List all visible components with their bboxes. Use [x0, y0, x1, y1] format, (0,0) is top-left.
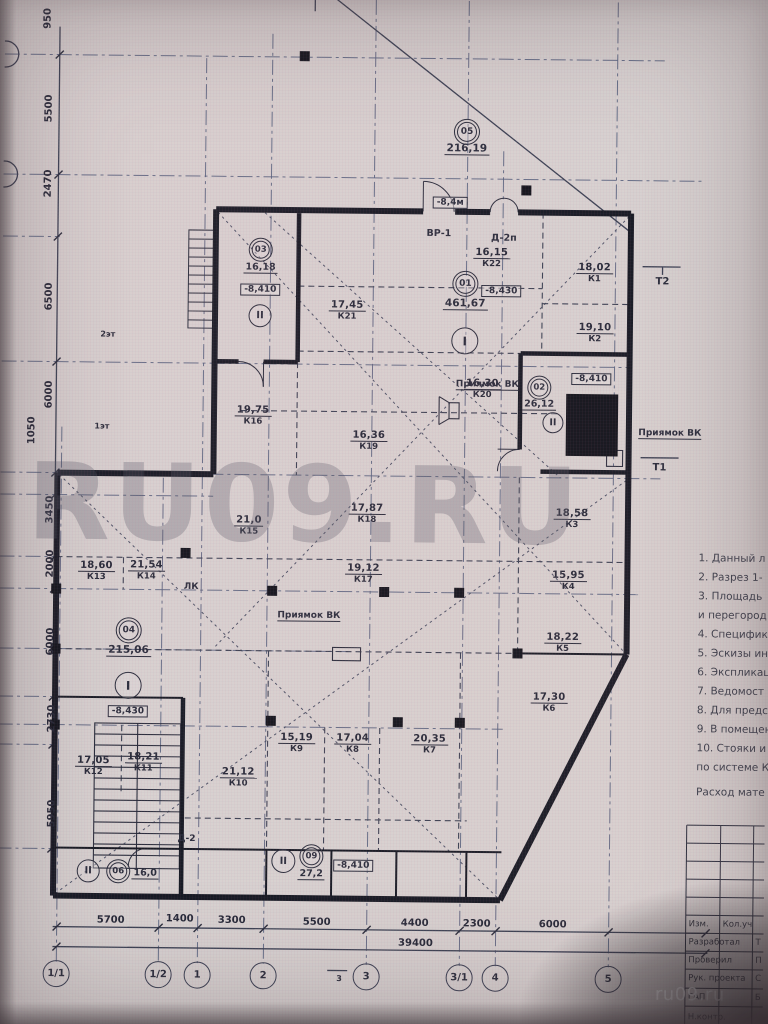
dimension-label: 2470 — [43, 169, 54, 197]
titleblock-cell: Б — [755, 993, 761, 1003]
door-label: Д-2 — [178, 834, 196, 844]
zone-area-value: 16,18 — [243, 262, 277, 274]
zone-area-value: 16,0 — [131, 867, 159, 879]
zone-area-value: 26,12 — [522, 398, 556, 410]
section-mark: Т2 — [655, 276, 669, 287]
watermark-text: RU09.RU — [26, 440, 762, 571]
axis-bubble: 3/1 — [445, 964, 472, 991]
room-label: 15,19К9 — [278, 732, 315, 754]
room-label: 16,15К22 — [473, 247, 510, 269]
dimension-label: 4400 — [401, 918, 429, 929]
zone-stamp-circle: 04 — [119, 620, 139, 640]
axis-bubble: 3 — [352, 963, 379, 990]
dimension-label: 2300 — [463, 918, 491, 929]
level-mark: -8,4м — [433, 196, 468, 208]
room-label: 17,04К8 — [334, 732, 371, 754]
drawing-sheet: 16,15К22 17,45К21 16,30К20 16,36К19 19,7… — [0, 0, 768, 1024]
dimension-label: 5950 — [46, 800, 57, 828]
dimension-label: 2730 — [46, 705, 57, 733]
zone-area-value: 216,19 — [444, 142, 489, 155]
note-line: 8. Для предс — [697, 701, 767, 721]
screen-photo: 16,15К22 17,45К21 16,30К20 16,36К19 19,7… — [0, 0, 768, 1024]
level-mark: -8,430 — [481, 285, 521, 297]
note-line: 3. Площадь — [698, 587, 768, 607]
titleblock-cell: Рук. проекта — [688, 973, 745, 984]
pit-label: Приямок ВК — [277, 610, 340, 622]
titleblock-cell: С — [755, 974, 761, 984]
dimension-label: 6000 — [45, 628, 56, 656]
room-label: 18,22К5 — [544, 632, 581, 654]
room-label: 17,05К12 — [75, 755, 112, 777]
note-line: 6. Экспликац — [697, 663, 767, 683]
axis-bubble: 1/2 — [145, 961, 172, 988]
titleblock-cell: Проверил — [688, 955, 732, 965]
section-mark: 3 — [336, 974, 342, 983]
dimension-label: 6500 — [44, 283, 55, 311]
dimension-label: 3300 — [218, 915, 246, 926]
axis-bubble: 4 — [481, 965, 508, 992]
note-line: 2. Разрез 1- — [698, 568, 768, 588]
dimension-label: 950 — [43, 8, 54, 29]
note-line: 4. Специфик — [698, 625, 768, 645]
zone-area-value: 215,06 — [106, 644, 151, 657]
room-label: 15,95К4 — [550, 570, 587, 592]
titleblock-cell: Изм. — [689, 919, 709, 929]
zone-stamp-circle: 01 — [455, 274, 475, 294]
room-label: 21,12К10 — [220, 766, 257, 788]
level-mark: -8,430 — [108, 705, 148, 717]
zone-roman-circle: I — [115, 672, 142, 699]
axis-bubble: 5 — [594, 966, 621, 993]
dimension-label: 1400 — [166, 913, 194, 924]
zone-roman-circle: I — [451, 327, 478, 354]
zone-roman-circle: II — [271, 849, 295, 873]
zone-roman-circle: II — [77, 859, 100, 882]
titleblock-cell: Кол.уч — [723, 920, 753, 930]
note-line: 7. Ведомост — [697, 682, 767, 702]
zone-stamp-circle: 06 — [109, 862, 127, 880]
zone-stamp-circle: 05 — [457, 122, 477, 142]
floor-mark: 2эт — [100, 330, 115, 339]
titleblock-cell: П — [755, 956, 762, 966]
room-label: 20,35К7 — [411, 733, 448, 755]
level-mark: -8,410 — [240, 283, 280, 295]
room-label: 19,10К2 — [576, 322, 613, 344]
zone-area-value: 461,67 — [443, 297, 488, 310]
dimension-total-label: 39400 — [398, 938, 433, 949]
room-label: 17,30К6 — [531, 692, 568, 714]
zone-stamp-circle: 02 — [530, 379, 548, 397]
vent-label: ВР-1 — [426, 228, 451, 239]
room-label: 19,75К16 — [235, 404, 272, 426]
zone-area-value: 27,2 — [297, 868, 325, 880]
note-line: по системе К — [696, 758, 766, 778]
dimension-label: 5500 — [44, 94, 55, 122]
level-mark: -8,410 — [333, 859, 373, 871]
axis-bubble: 1/1 — [43, 960, 70, 987]
door-label: Д-2п — [491, 233, 517, 244]
note-line: и перегород — [698, 606, 768, 626]
pit-label: Приямок ВК — [638, 428, 701, 440]
note-line: Расход мате — [696, 783, 766, 803]
pit-label: Приямок ВК — [456, 379, 519, 391]
note-line: 5. Эскизы ин — [697, 644, 767, 664]
titleblock-cell: Т — [755, 938, 760, 948]
site-url-label: ru09.ru — [655, 984, 725, 1006]
zone-roman-circle: II — [248, 304, 271, 327]
notes-list: 1. Данный л 2. Разрез 1- 3. Площадь и пе… — [696, 549, 768, 803]
dimension-label: 5700 — [97, 915, 125, 926]
dimension-label: 6000 — [44, 381, 55, 409]
dimension-label: 6000 — [539, 919, 567, 930]
room-label: 18,21К11 — [125, 751, 162, 773]
axis-bubble: 1 — [183, 961, 210, 988]
dimension-label: 5500 — [303, 917, 331, 928]
zone-stamp-circle: 03 — [252, 241, 270, 259]
note-line: 10. Стояки и — [696, 739, 766, 759]
stair-core-label: ЛК — [184, 582, 199, 592]
room-label: 17,45К21 — [329, 299, 366, 321]
titleblock-cell: Разработал — [688, 937, 740, 948]
titleblock-cell: Н.контр. — [688, 1012, 726, 1022]
note-line: 9. В помещен — [697, 720, 767, 740]
zone-stamp-circle: 09 — [302, 847, 320, 865]
floor-mark: 1эт — [94, 421, 109, 430]
axis-bubble: 2 — [249, 962, 276, 989]
zone-roman-circle: II — [542, 412, 563, 433]
room-label: 18,02К1 — [576, 262, 613, 284]
level-mark: -8,410 — [571, 373, 611, 385]
